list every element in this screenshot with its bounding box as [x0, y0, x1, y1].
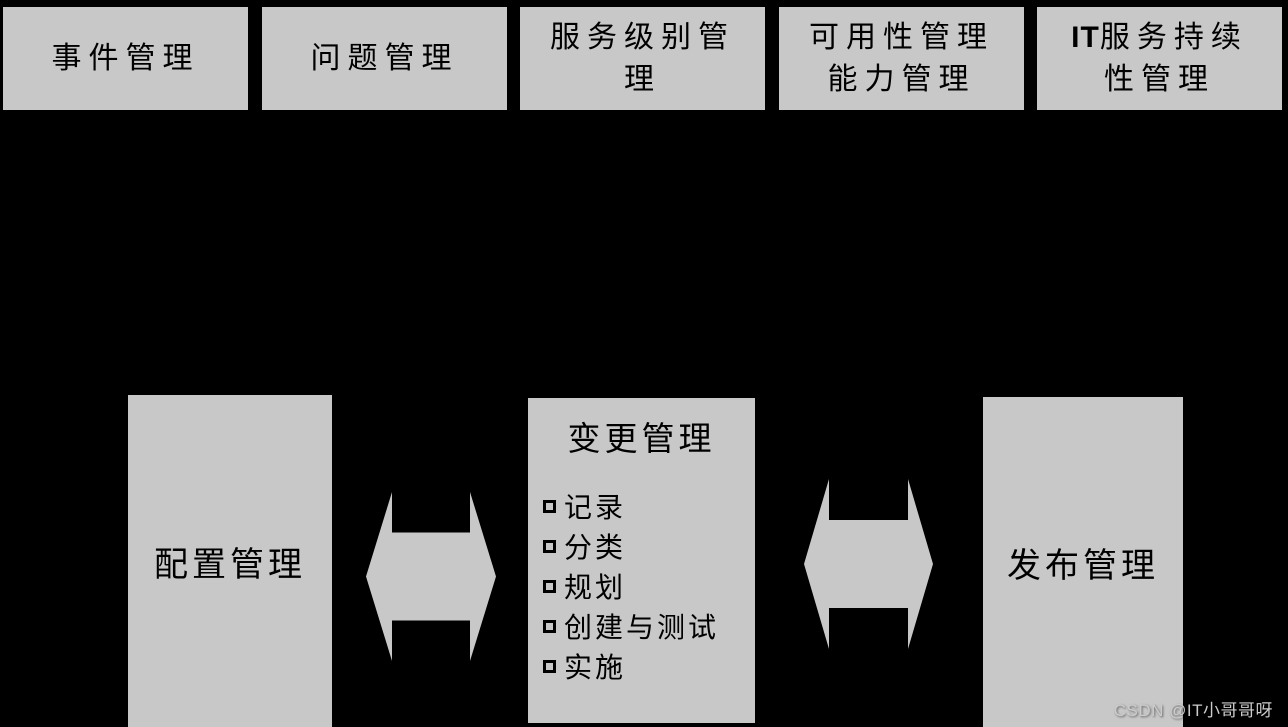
process-box-label-line: 事件管理	[52, 38, 200, 80]
configuration-management-label: 配置管理	[154, 537, 306, 586]
configuration-management-box: 配置管理	[128, 395, 332, 727]
release-management-label: 发布管理	[1007, 538, 1159, 587]
arrow-shape	[366, 492, 496, 661]
change-task-item: 分类	[543, 526, 755, 566]
change-task-label: 创建与测试	[564, 606, 719, 646]
square-bullet-icon	[543, 660, 556, 673]
square-bullet-icon	[543, 540, 556, 553]
left-right-arrow-icon	[366, 492, 496, 661]
change-task-label: 规划	[564, 566, 626, 606]
diagram-canvas: 事件管理问题管理服务级别管理可用性管理能力管理IT服务持续性管理 配置管理 变更…	[0, 0, 1288, 727]
process-box-service-level-management: 服务级别管理	[520, 7, 765, 110]
process-box-label-line: 性管理	[1104, 59, 1215, 101]
left-right-arrow-icon	[804, 479, 933, 649]
change-task-item: 记录	[543, 486, 755, 526]
process-box-label-line: 可用性管理	[809, 17, 994, 59]
process-box-label-line: IT服务持续	[1071, 17, 1248, 59]
process-box-label-line: 问题管理	[311, 38, 459, 80]
square-bullet-icon	[543, 620, 556, 633]
change-task-list: 记录分类规划创建与测试实施	[528, 486, 755, 686]
square-bullet-icon	[543, 580, 556, 593]
process-box-it-service-continuity-management: IT服务持续性管理	[1037, 7, 1282, 110]
csdn-watermark: CSDN @IT小哥哥呀	[1114, 696, 1273, 721]
change-task-item: 创建与测试	[543, 606, 755, 646]
change-task-item: 实施	[543, 646, 755, 686]
change-task-label: 记录	[564, 486, 626, 526]
change-task-label: 实施	[564, 646, 626, 686]
process-box-problem-management: 问题管理	[262, 7, 507, 110]
change-management-title: 变更管理	[528, 398, 755, 442]
change-management-box: 变更管理 记录分类规划创建与测试实施	[528, 398, 755, 723]
square-bullet-icon	[543, 500, 556, 513]
change-task-item: 规划	[543, 566, 755, 606]
process-box-incident-management: 事件管理	[3, 7, 248, 110]
process-box-label-line: 能力管理	[828, 59, 976, 101]
change-task-label: 分类	[564, 526, 626, 566]
process-box-label-line: 理	[624, 59, 661, 101]
arrow-shape	[804, 479, 933, 649]
process-box-label-line: 服务级别管	[550, 17, 735, 59]
process-box-availability-capacity-management: 可用性管理能力管理	[779, 7, 1024, 110]
release-management-box: 发布管理	[983, 397, 1183, 727]
